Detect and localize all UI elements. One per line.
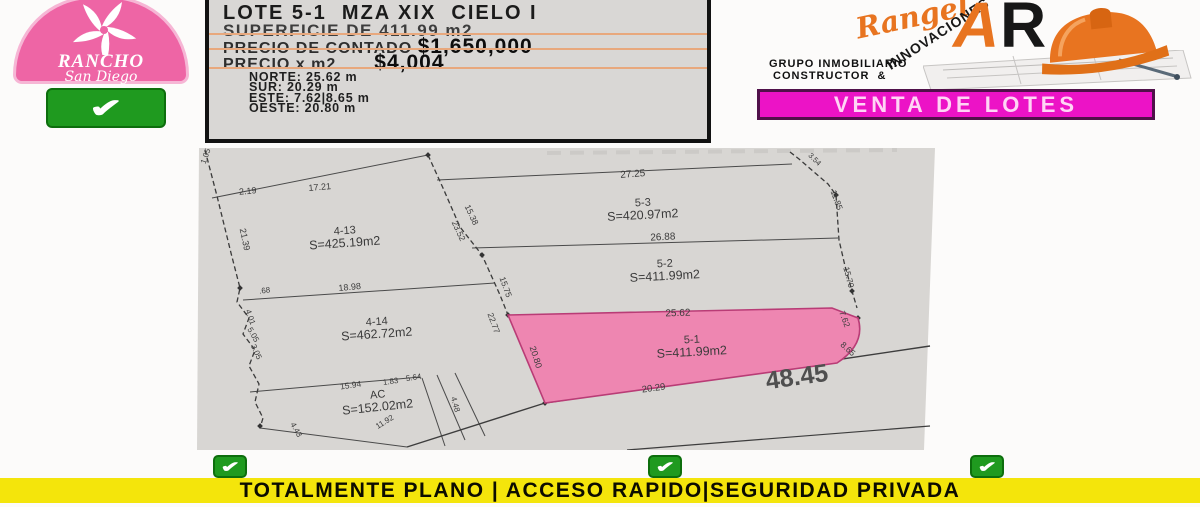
- map-measurement: 17.21: [308, 181, 331, 193]
- map-measurement: 27.25: [620, 168, 646, 181]
- plat-map: 4-13S=425.19m25-3S=420.97m25-2S=411.99m2…: [197, 148, 935, 450]
- badge-checkmark: ✔: [46, 88, 166, 128]
- map-measurement: .68: [259, 285, 272, 296]
- map-ground: [197, 148, 935, 450]
- feature-checkmark-2: ✔: [648, 455, 682, 478]
- map-measurement: 26.88: [650, 231, 676, 243]
- precio-m2-value: $4,004: [374, 51, 444, 74]
- check-icon: ✔: [220, 458, 239, 476]
- check-icon: ✔: [655, 458, 674, 476]
- brand-block: Rangel INNOVACIONES A R GRUPO INMOBILIAR…: [755, 0, 1200, 88]
- brand-tagline: GRUPO INMOBILIARIO CONSTRUCTOR &: [769, 58, 907, 82]
- lot-info-panel: LOTE 5-1 MZA XIX CIELO I SUPERFICIE DE 4…: [205, 0, 711, 143]
- check-icon: ✔: [89, 93, 123, 124]
- features-banner: TOTALMENTE PLANO | ACCESO RAPIDO|SEGURID…: [0, 478, 1200, 503]
- divider: [209, 48, 707, 50]
- oeste-label: OESTE:: [249, 101, 300, 115]
- venta-de-lotes-banner: VENTA DE LOTES: [757, 89, 1155, 120]
- flower-logo-icon: [66, 1, 142, 55]
- hardhat-icon: [1033, 0, 1172, 85]
- map-measurement: 2.19: [239, 185, 257, 196]
- check-icon: ✔: [977, 458, 996, 476]
- feature-checkmark-3: ✔: [970, 455, 1004, 478]
- badge-subtitle: San Diego: [16, 69, 186, 85]
- lot-bounds: NORTE: 25.62 mSUR: 20.29 mESTE: 7.62|8.6…: [249, 72, 370, 124]
- divider: [209, 67, 707, 69]
- rancho-san-diego-badge: RANCHO San Diego: [13, 0, 189, 84]
- oeste-value: 20.80 m: [300, 101, 356, 115]
- feature-checkmark-1: ✔: [213, 455, 247, 478]
- map-measurement: 25.62: [665, 308, 691, 320]
- real-estate-flyer: RANCHO San Diego ✔ LOTE 5-1 MZA XIX CIEL…: [0, 0, 1200, 507]
- monogram-a: A: [953, 0, 999, 62]
